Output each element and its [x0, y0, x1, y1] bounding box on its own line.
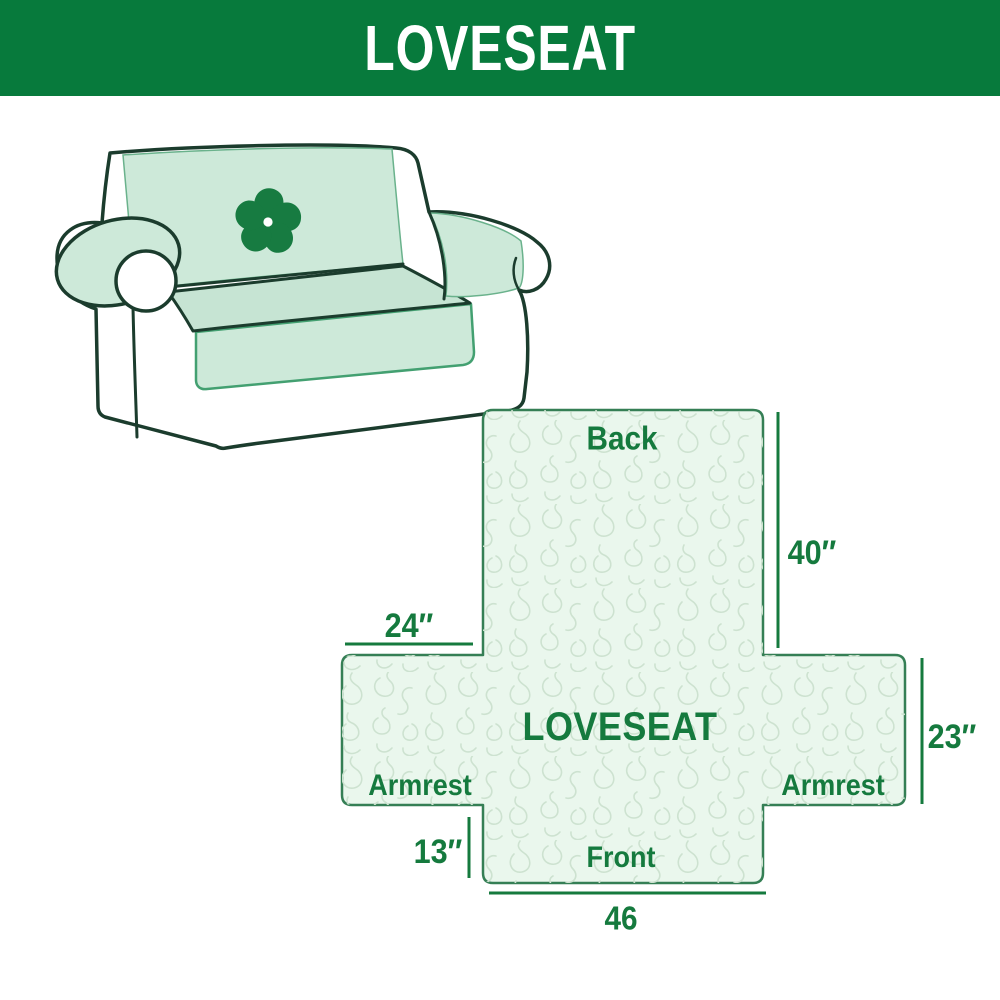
- armrest-right-label: Armrest: [775, 771, 890, 801]
- center-product-label: LOVESEAT: [512, 707, 729, 747]
- back-section-label: Back: [583, 422, 662, 455]
- armrest-width-value: 24″: [382, 609, 436, 643]
- back-height-value: 40″: [785, 536, 839, 570]
- left-arm-front: [116, 251, 176, 311]
- front-section-label: Front: [583, 843, 660, 873]
- loveseat-cover-infographic: LOVESEAT: [0, 0, 1000, 1000]
- armrest-height-value: 23″: [925, 720, 979, 754]
- front-skirt-height-value: 13″: [411, 835, 465, 869]
- pinwheel-center-dot: [263, 217, 272, 226]
- front-width-value: 46: [603, 902, 640, 935]
- armrest-left-label: Armrest: [362, 771, 477, 801]
- header-title: LOVESEAT: [364, 16, 636, 80]
- header-banner: LOVESEAT: [0, 0, 1000, 96]
- cover-cross-quilt-texture: [342, 410, 905, 883]
